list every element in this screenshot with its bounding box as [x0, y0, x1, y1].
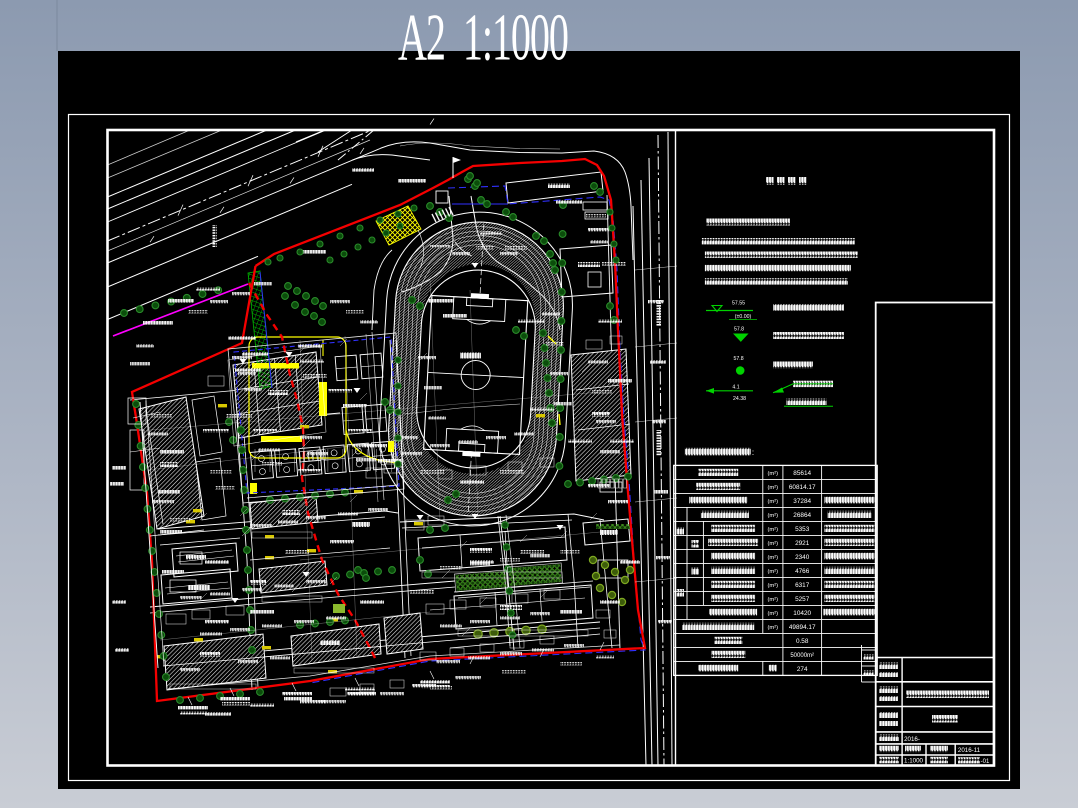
svg-text:2016-11: 2016-11: [958, 747, 981, 754]
svg-text:57.8: 57.8: [734, 356, 744, 362]
svg-text:5257: 5257: [795, 596, 810, 603]
svg-text:4.1: 4.1: [732, 384, 739, 390]
svg-text:4766: 4766: [795, 568, 810, 575]
svg-text::: :: [752, 448, 754, 457]
svg-text:85614: 85614: [793, 470, 811, 477]
svg-text:24.38: 24.38: [733, 396, 746, 402]
svg-text:2921: 2921: [795, 540, 810, 547]
svg-text:5353: 5353: [795, 526, 810, 533]
svg-text:10420: 10420: [793, 610, 811, 617]
svg-text:(m²): (m²): [767, 471, 778, 477]
svg-text:(m²): (m²): [767, 625, 778, 631]
svg-text:60814.17: 60814.17: [789, 484, 816, 491]
svg-text:(m²): (m²): [767, 597, 778, 603]
svg-text:(m²): (m²): [767, 527, 778, 533]
svg-text:(m²): (m²): [767, 541, 778, 547]
svg-text:37284: 37284: [793, 498, 811, 505]
svg-text:(m²): (m²): [767, 583, 778, 589]
svg-text:2016-: 2016-: [904, 736, 920, 743]
svg-text:57.8: 57.8: [734, 327, 744, 333]
svg-text:A2 1:1000: A2 1:1000: [398, 0, 569, 74]
svg-text:6317: 6317: [795, 582, 810, 589]
svg-text:26864: 26864: [793, 512, 811, 519]
svg-text:(m²): (m²): [767, 555, 778, 561]
svg-text:0.58: 0.58: [796, 638, 809, 645]
svg-text:(m²): (m²): [767, 569, 778, 575]
svg-text:(m²): (m²): [767, 485, 778, 491]
svg-text:50000m²: 50000m²: [790, 653, 814, 659]
svg-text:(m²): (m²): [767, 499, 778, 505]
svg-text:57.55: 57.55: [732, 301, 745, 307]
svg-text:(m²): (m²): [767, 513, 778, 519]
svg-text:2340: 2340: [795, 554, 810, 561]
svg-text:49894.17: 49894.17: [789, 624, 816, 631]
svg-text:274: 274: [797, 666, 808, 673]
svg-text:(m²): (m²): [767, 611, 778, 617]
svg-text:1:1000: 1:1000: [904, 758, 923, 765]
svg-text:-01: -01: [981, 759, 990, 765]
